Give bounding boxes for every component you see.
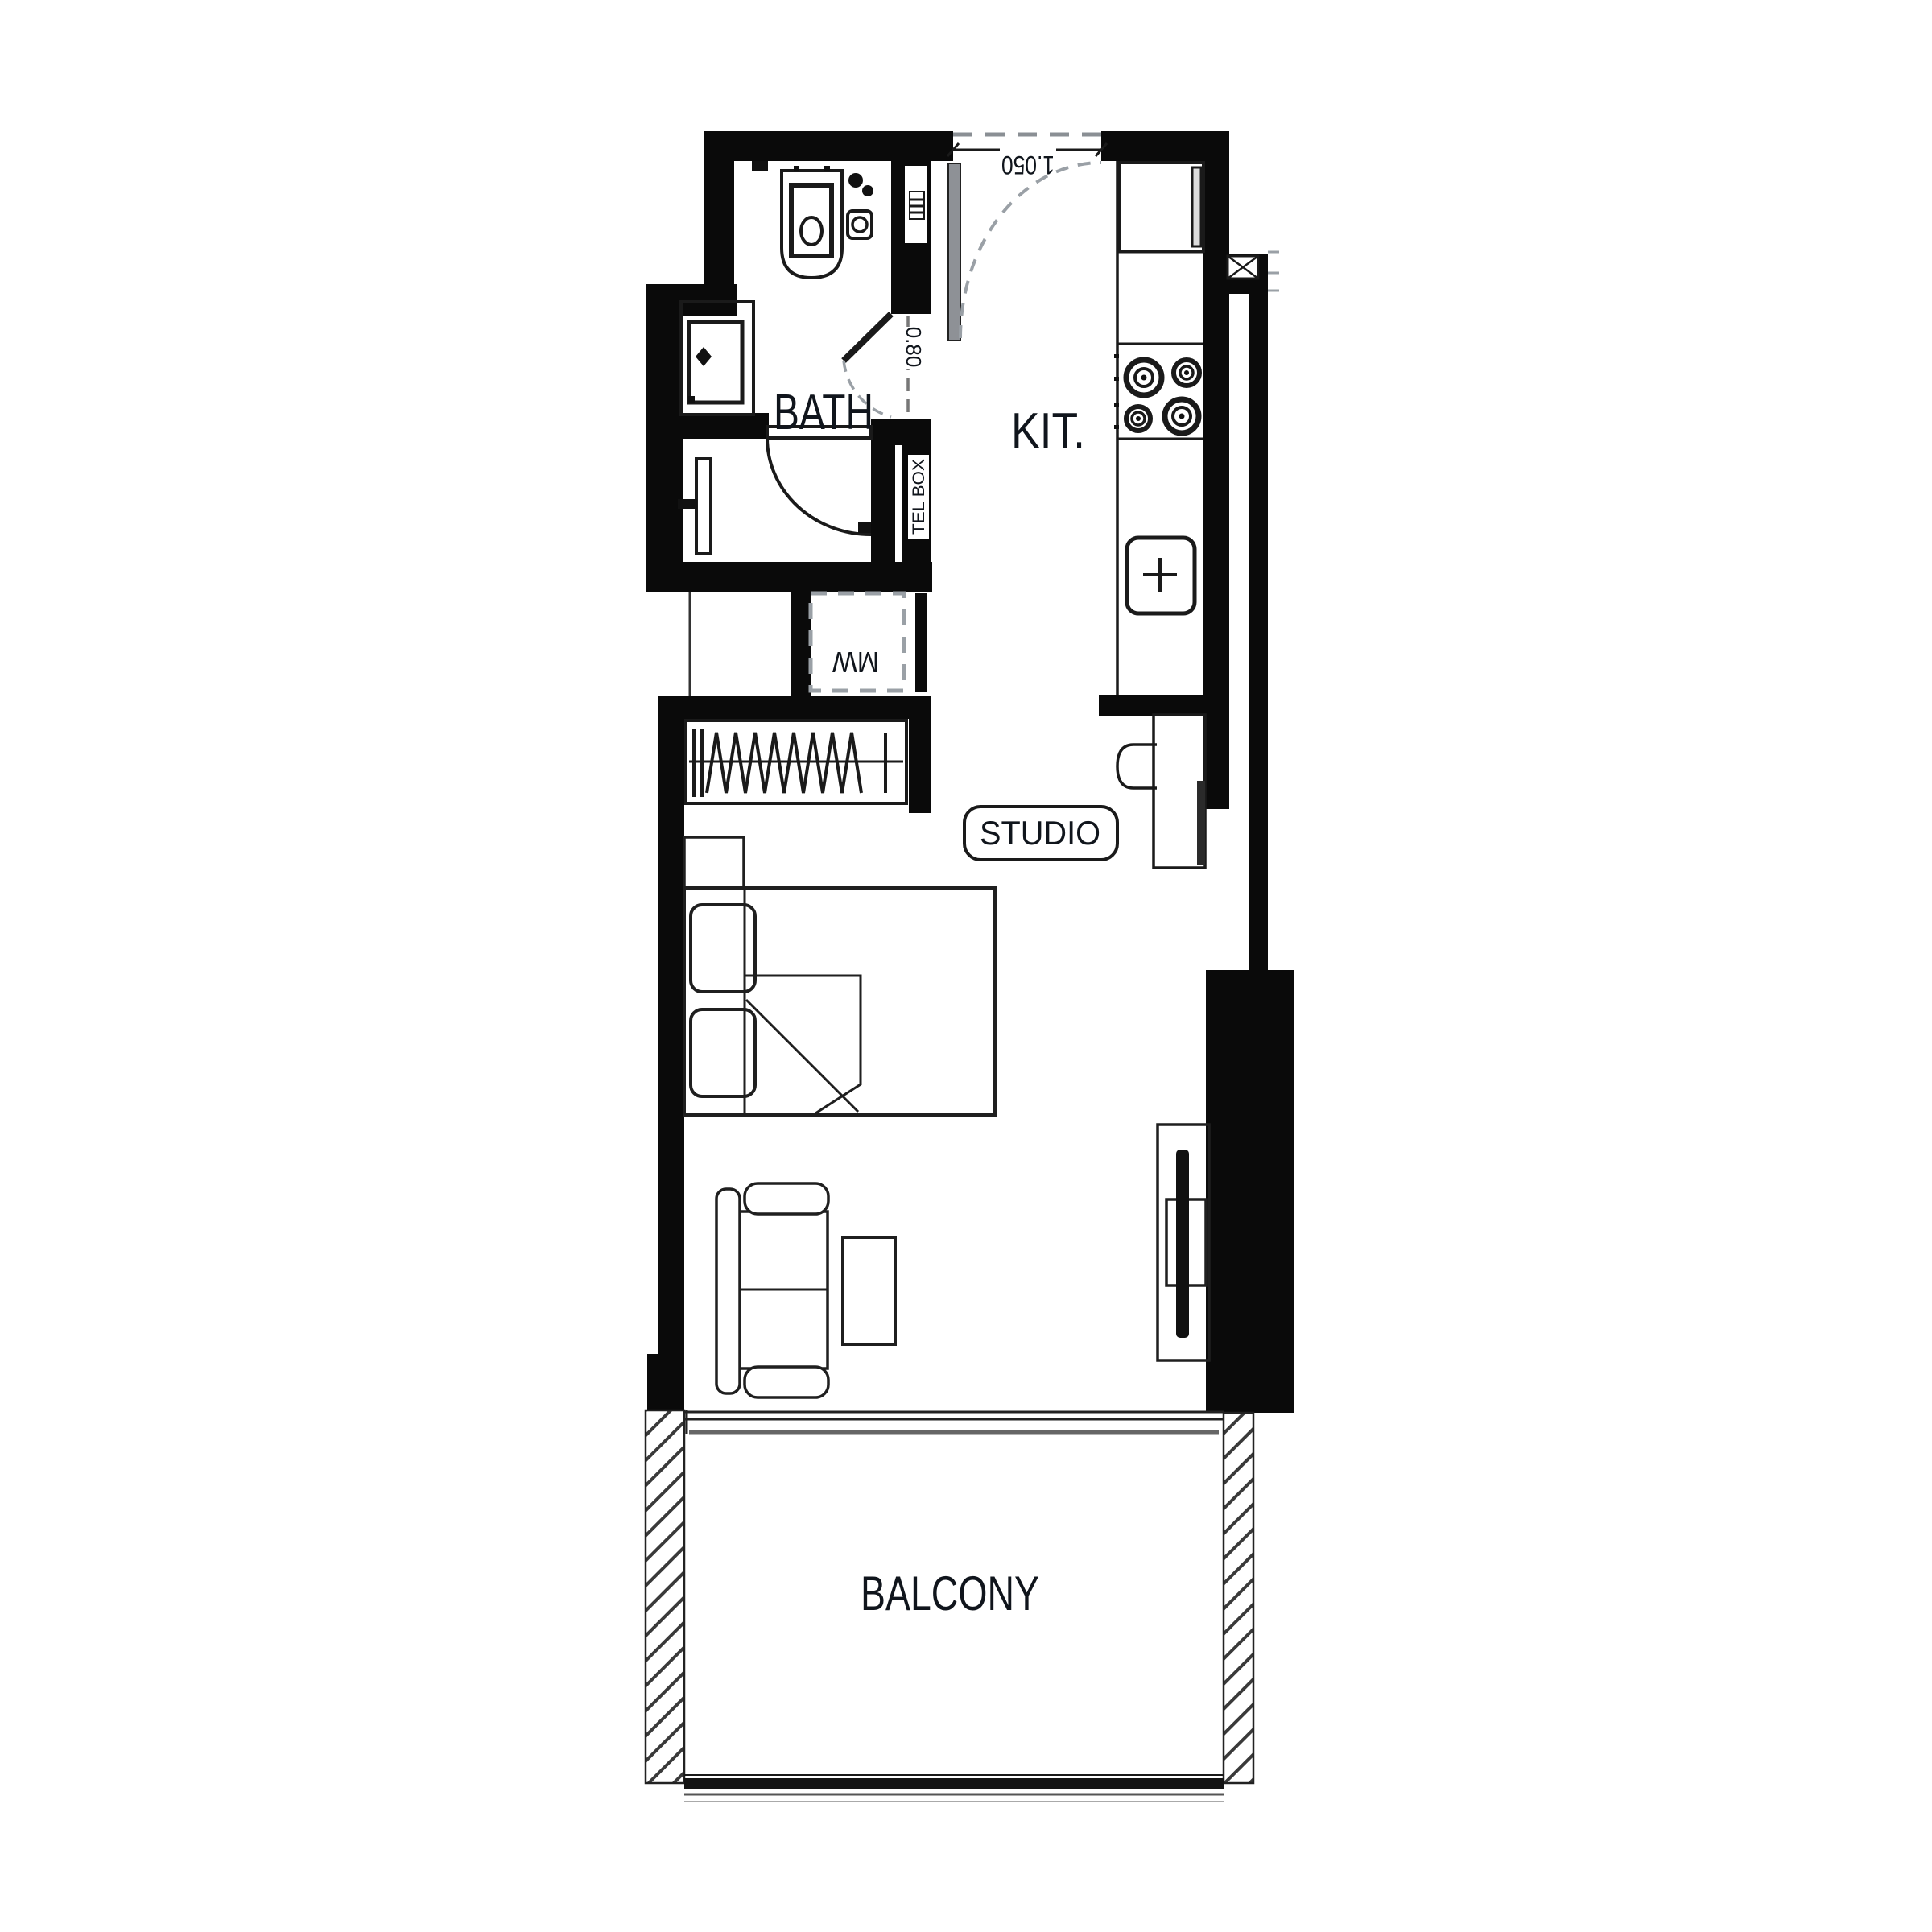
wall-column — [1206, 970, 1294, 1413]
wall-studio-left-end — [647, 1354, 684, 1410]
fridge-icon — [1119, 163, 1203, 251]
desk-area — [1117, 715, 1205, 868]
wall-outer-strip — [1249, 294, 1268, 970]
tel-box-label: TEL BOX — [910, 459, 928, 535]
nightstand — [684, 837, 744, 890]
entry-width-dimension: 1.050 — [1001, 151, 1055, 180]
wall-kitchen-bottom — [1099, 695, 1212, 716]
entry-door-leaf — [948, 163, 960, 341]
wall-shower-left — [646, 439, 683, 562]
coffee-table — [843, 1237, 895, 1344]
kitchen-sink-icon — [1127, 538, 1195, 613]
wall-kitchen-top — [1101, 131, 1229, 161]
shower-door — [767, 427, 871, 535]
wall-closet-top — [658, 696, 931, 719]
balcony-railing — [684, 1775, 1224, 1802]
kitchen-label: KIT. — [1011, 403, 1085, 459]
floor-plan-svg: 1.050 — [644, 121, 1300, 1807]
wall-left-washbasin — [646, 316, 683, 415]
tv-unit — [1158, 1125, 1209, 1360]
service-ticks — [1268, 252, 1279, 291]
wardrobe-icon — [686, 720, 906, 803]
wall-divider-shower — [646, 413, 769, 439]
stove-icon — [1114, 354, 1199, 433]
wall-mw-right — [915, 593, 927, 692]
shower-room — [678, 427, 871, 554]
wall-niche-line — [895, 445, 902, 562]
wall-mw-left — [791, 592, 811, 696]
shower-fixture-icon — [678, 459, 711, 554]
balcony-wall-left-hatch — [646, 1410, 684, 1783]
bed-icon — [684, 837, 995, 1115]
balcony-label: BALCONY — [861, 1567, 1039, 1620]
wall-inner-strip — [1203, 294, 1229, 809]
service-box-icon — [1228, 256, 1258, 279]
washbasin-icon — [681, 302, 753, 415]
wall-kitchen-right-upper — [1203, 161, 1229, 254]
wall-closet-right — [909, 700, 931, 813]
hand-sprayer-icon — [848, 173, 873, 196]
bath-door-dimension: 0.80 — [902, 327, 926, 368]
toilet-icon — [782, 166, 842, 278]
balcony-wall-right-hatch — [1224, 1413, 1253, 1783]
duct-marker-icon — [910, 192, 924, 219]
wall-step-block — [646, 284, 737, 316]
bath-label: BATH — [774, 385, 873, 440]
sofa-icon — [716, 1183, 828, 1397]
floor-drain-icon — [848, 211, 872, 238]
desk-chair — [1117, 745, 1157, 788]
tv-icon — [1176, 1150, 1189, 1338]
kitchen-counter — [1114, 161, 1203, 695]
wall-tick — [752, 161, 768, 171]
studio-label: STUDIO — [980, 814, 1100, 852]
sliding-balcony-door — [684, 1410, 1224, 1434]
desk-shelf — [1197, 781, 1205, 865]
microwave-label: MW — [832, 646, 879, 679]
floor-plan: 1.050 — [644, 121, 1300, 1807]
entry-door-swing — [960, 163, 1101, 338]
wall-studio-left — [658, 719, 684, 1354]
